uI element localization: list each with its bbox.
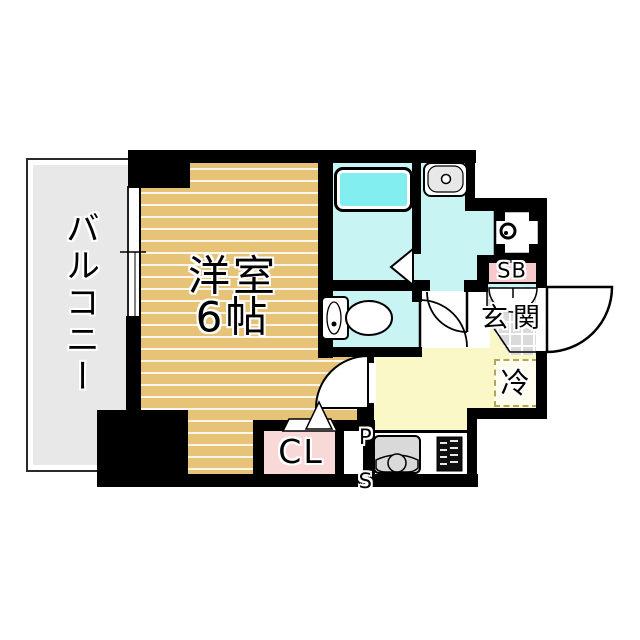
toilet-area bbox=[318, 283, 422, 357]
room-doorway bbox=[356, 360, 376, 405]
balcony-label: バルコニー bbox=[62, 211, 97, 396]
wall bbox=[126, 316, 141, 413]
closet-label: CL bbox=[278, 435, 323, 469]
refrigerator-label: 冷 bbox=[500, 369, 529, 399]
wall bbox=[412, 163, 421, 254]
wall bbox=[128, 150, 190, 188]
floor-plan: バルコニー 洋室 6帖 玄関 SB 冷 CL P S bbox=[0, 0, 640, 640]
wall bbox=[465, 198, 547, 211]
wall bbox=[318, 280, 421, 291]
pipe-space-label: P S bbox=[332, 404, 372, 514]
wall bbox=[357, 347, 374, 363]
kitchen-counter-line bbox=[372, 430, 467, 433]
window bbox=[127, 186, 141, 318]
bathtub bbox=[334, 167, 413, 212]
pipe-space-p: P bbox=[359, 425, 372, 449]
entrance-label: 玄関 bbox=[481, 305, 545, 333]
pipe-space-s: S bbox=[359, 469, 372, 493]
hall-door-zone bbox=[420, 291, 490, 348]
kitchen-counter-area bbox=[372, 431, 467, 474]
room-size-label: 6帖 bbox=[196, 297, 271, 340]
wall bbox=[318, 163, 333, 358]
wall bbox=[464, 280, 488, 292]
wall bbox=[467, 408, 477, 487]
wall bbox=[97, 410, 188, 487]
floor-plan-page: { "plan": { "labels": { "balcony": "バルコニ… bbox=[0, 0, 640, 640]
wall bbox=[536, 260, 547, 288]
wall bbox=[467, 408, 547, 419]
shoe-box-label: SB bbox=[497, 260, 527, 281]
wall bbox=[253, 420, 264, 477]
entrance-door-arc bbox=[547, 287, 612, 352]
wall bbox=[412, 280, 430, 291]
